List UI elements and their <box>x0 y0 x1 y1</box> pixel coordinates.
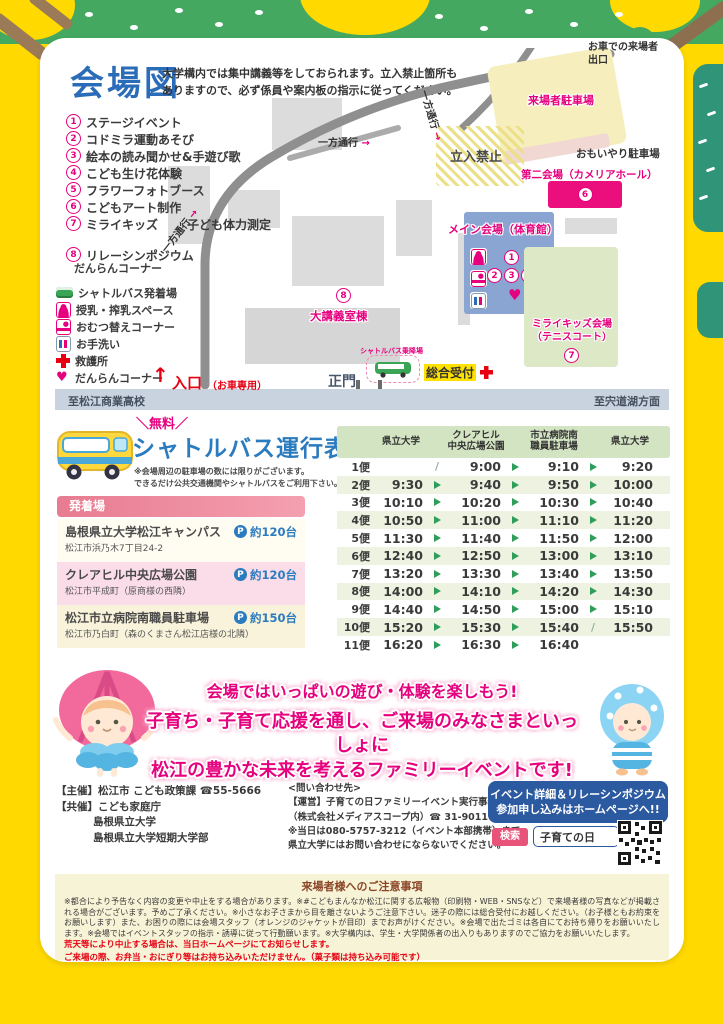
leaf-dot <box>130 25 138 30</box>
arrow-separator <box>429 534 445 542</box>
activity-number: 6 <box>66 199 81 214</box>
timetable-row: 2便 9:30 9:40 9:50 10:00 <box>337 476 670 494</box>
search-input[interactable] <box>533 826 619 847</box>
time-cell: 13:30 <box>445 566 507 581</box>
arrow-separator <box>429 605 445 613</box>
banner-line3: 松江の豊かな未来を考えるファミリーイベントです! <box>140 759 584 783</box>
notes-panel: 来場者様へのご注意事項 ※都合により予告なく内容の変更や中止をする場合があります… <box>55 874 669 960</box>
time-cell: 11:30 <box>373 531 429 546</box>
trip-label: 9便 <box>337 601 373 617</box>
trip-label: 1便 <box>337 459 373 475</box>
parking-icon <box>234 611 247 624</box>
organizer-line: 島根県立大学短期大学部 <box>56 831 261 847</box>
time-cell: 9:50 <box>523 477 585 492</box>
notes-body: ※都合により予告なく内容の変更や中止をする場合があります。※#こどもまんなか松江… <box>64 897 660 939</box>
arrow-separator <box>429 516 445 524</box>
first-aid-icon <box>56 354 70 368</box>
arrow-separator <box>429 460 445 473</box>
arrow-separator <box>507 498 523 506</box>
time-cell: 9:00 <box>445 459 507 474</box>
oneway-label-horizontal: 一方通行 → <box>318 134 370 149</box>
time-cell: 14:00 <box>373 584 429 599</box>
arrow-separator <box>507 570 523 578</box>
arrow-separator <box>429 481 445 489</box>
activity-number: 4 <box>66 165 81 180</box>
activity-item: 2 コドミラ運動あそび <box>66 131 271 148</box>
stop-item: 島根県立大学松江キャンパス 約120台 松江市浜乃木7丁目24-2 <box>57 519 305 562</box>
arrow-separator <box>429 498 445 506</box>
time-cell: 16:30 <box>445 637 507 652</box>
notes-red-line: ご来場の際、お弁当・おにぎり等はお持ち込みいただけません。（菓子類は持ち込み可能… <box>64 952 660 964</box>
activity-item: 3 絵本の読み聞かせ&手遊び歌 <box>66 148 271 165</box>
diaper-icon <box>470 270 487 287</box>
time-cell: 16:20 <box>373 637 429 652</box>
stop-item: 松江市立病院南職員駐車場 約150台 松江市乃白町（森のくまさん松江店様の北隣） <box>57 605 305 648</box>
time-cell: 10:20 <box>445 495 507 510</box>
shuttle-notes: ※会場周辺の駐車場の数には限りがございます。 できるだけ公共交通機関やシャトルバ… <box>134 466 342 491</box>
activity-item: 6 こどもアート制作 <box>66 199 271 216</box>
front-road <box>55 389 669 410</box>
trip-label: 8便 <box>337 583 373 599</box>
time-cell: 10:10 <box>373 495 429 510</box>
activity-number: 1 <box>66 114 81 129</box>
arrow-separator <box>585 621 601 634</box>
arrow-separator <box>585 587 601 595</box>
flyer-page: 会場図 大学構内では集中講義等をしておられます。立入禁止箇所も ありますので、必… <box>0 0 723 1024</box>
website-banner-line1: イベント詳細＆リレーシンポジウム <box>490 787 666 802</box>
arrow-separator <box>507 534 523 542</box>
trip-label: 5便 <box>337 530 373 546</box>
col-header-3: 市立病院南職員駐車場 <box>523 431 585 453</box>
organizer-block: 【主催】松江市 こども政策課 ☎55-5666 【共催】こども家庭庁 島根県立大… <box>56 784 261 846</box>
legend-item: シャトルバス発着場 <box>56 284 177 301</box>
entrance-note: （お車専用） <box>207 377 267 392</box>
time-cell: 13:40 <box>523 566 585 581</box>
to-lake-label: 至宍道湖方面 <box>594 393 660 409</box>
main-gate-label: 正門 <box>328 371 356 391</box>
activity-label: ステージイベント <box>86 114 182 131</box>
activity-number: 5 <box>66 182 81 197</box>
mascot-right <box>582 674 682 779</box>
timetable: 県立大学 クレアヒル中央広場公園 市立病院南職員駐車場 県立大学 1便 9:00… <box>337 426 670 654</box>
stop-name: 島根県立大学松江キャンパス <box>65 523 221 540</box>
time-cell: 12:40 <box>373 548 429 563</box>
arrow-separator <box>429 623 445 631</box>
time-cell: 12:50 <box>445 548 507 563</box>
legend-label: お手洗い <box>76 336 120 352</box>
timetable-row: 3便 10:10 10:20 10:30 10:40 <box>337 494 670 512</box>
visitor-parking-label: 来場者駐車場 <box>506 92 616 108</box>
time-cell: 14:40 <box>373 602 429 617</box>
stop-address: 松江市浜乃木7丁目24-2 <box>65 541 297 554</box>
legend-item: お手洗い <box>56 335 177 352</box>
mirai-kids-label: ミライキッズ会場 （テニスコート） <box>526 318 618 344</box>
legend-label: 救護所 <box>75 353 108 369</box>
arrow-separator <box>585 516 601 524</box>
oneway-text: 一方通行 <box>318 138 358 149</box>
entrance-arrow-icon: ↑ <box>152 363 169 387</box>
time-cell: 15:30 <box>445 620 507 635</box>
banner-line2: 子育ち・子育て応援を通し、ご来場のみなさまといっしょに <box>140 710 584 759</box>
shuttle-title: シャトルバス運行表 <box>132 429 348 463</box>
stop-item: クレアヒル中央広場公園 約120台 松江市平成町（原商様の西隣） <box>57 562 305 605</box>
nursing-icon <box>470 248 487 265</box>
activity-number: 2 <box>66 131 81 146</box>
arrow-separator <box>585 570 601 578</box>
notes-red-line: 荒天等により中止する場合は、当日ホームページにてお知らせします。 <box>64 939 660 951</box>
timetable-row: 1便 9:00 9:10 9:20 <box>337 458 670 476</box>
no-entry-label: 立入禁止 <box>450 146 502 165</box>
stop-capacity: 約150台 <box>250 610 297 626</box>
arrow-separator <box>507 481 523 489</box>
lecture-hall-label: 大講義室棟 <box>310 308 368 324</box>
activity-label: フラワーフォトブース <box>86 182 205 199</box>
arrow-separator <box>507 516 523 524</box>
time-cell: 13:10 <box>601 548 659 563</box>
parking-icon <box>234 568 247 581</box>
shuttle-stop-marker <box>366 355 420 383</box>
time-cell: 9:30 <box>373 477 429 492</box>
reception-label: 総合受付 <box>424 364 476 381</box>
arrow-separator <box>585 463 601 471</box>
website-banner: イベント詳細＆リレーシンポジウム 参加申し込みはホームページへ!! <box>488 781 668 823</box>
activity-number: 7 <box>66 216 81 231</box>
leaf-dot <box>480 26 488 31</box>
second-venue-block: 6 <box>548 181 622 208</box>
arrow-separator <box>585 605 601 613</box>
arrow-separator <box>507 605 523 613</box>
time-cell: 10:00 <box>601 477 659 492</box>
care-parking-label: おもいやり駐車場 <box>576 146 660 161</box>
time-cell: 13:00 <box>523 548 585 563</box>
time-cell: 12:00 <box>601 531 659 546</box>
shuttle-note-line2: できるだけ公共交通機関やシャトルバスをご利用下さい。 <box>134 478 342 490</box>
arrow-separator <box>585 552 601 560</box>
entrance-label: 入口 <box>172 372 202 393</box>
qr-code <box>617 820 663 866</box>
hall-number-2: 2 <box>487 268 502 283</box>
restroom-icon <box>56 336 71 352</box>
legend-item: おむつ替えコーナー <box>56 318 177 335</box>
banner: 会場ではいっぱいの遊び・体験を楽しもう! 子育ち・子育て応援を通し、ご来場のみな… <box>140 678 584 783</box>
timetable-header: 県立大学 クレアヒル中央広場公園 市立病院南職員駐車場 県立大学 <box>337 426 670 458</box>
first-aid-cross-icon <box>480 366 493 379</box>
time-cell: 14:10 <box>445 584 507 599</box>
time-cell: 15:10 <box>601 602 659 617</box>
arrow-separator <box>507 552 523 560</box>
trip-label: 7便 <box>337 566 373 582</box>
parking-icon <box>234 525 247 538</box>
time-cell: 13:20 <box>373 566 429 581</box>
time-cell: 10:50 <box>373 513 429 528</box>
shuttle-bus-icon <box>373 360 413 378</box>
time-cell: 9:20 <box>601 459 659 474</box>
time-cell: 10:30 <box>523 495 585 510</box>
leaf-dot <box>570 22 578 27</box>
bus-illustration <box>54 424 138 484</box>
arrow-separator <box>429 587 445 595</box>
stop-name: クレアヒル中央広場公園 <box>65 566 197 583</box>
time-cell: 14:50 <box>445 602 507 617</box>
legend-label: だんらんコーナー <box>75 370 163 386</box>
time-cell: 9:10 <box>523 459 585 474</box>
legend-label: おむつ替えコーナー <box>76 319 175 335</box>
oneway-arrow-icon: → <box>361 138 369 149</box>
col-header-1: 県立大学 <box>373 437 429 448</box>
banner-line1: 会場ではいっぱいの遊び・体験を楽しもう! <box>140 678 584 702</box>
time-cell: 15:50 <box>601 620 659 635</box>
leaf-dot <box>435 14 443 19</box>
arrow-separator <box>507 463 523 471</box>
arrow-separator <box>429 641 445 649</box>
time-cell: 15:40 <box>523 620 585 635</box>
nursing-icon <box>56 302 71 318</box>
timetable-row: 5便 11:30 11:40 11:50 12:00 <box>337 529 670 547</box>
time-cell: 13:50 <box>601 566 659 581</box>
stop-capacity: 約120台 <box>250 524 297 540</box>
trip-label: 6便 <box>337 548 373 564</box>
leaf-dot <box>175 8 183 13</box>
time-cell: 10:40 <box>601 495 659 510</box>
leaf-dot <box>85 12 93 17</box>
leaf-dot <box>215 22 223 27</box>
mirai-kids-line1: ミライキッズ会場 <box>526 318 618 331</box>
organizer-line: 【主催】松江市 こども政策課 ☎55-5666 <box>56 784 261 800</box>
time-cell: 11:20 <box>601 513 659 528</box>
activity-label-line2: 子ども体力測定 <box>187 216 271 233</box>
organizer-line: 島根県立大学 <box>56 815 261 831</box>
second-venue-number: 6 <box>578 187 593 202</box>
arrow-separator <box>507 641 523 649</box>
time-cell: 14:30 <box>601 584 659 599</box>
second-venue-label: 第二会場（カメリアホール） <box>521 167 658 182</box>
activity-label: 絵本の読み聞かせ&手遊び歌 <box>86 148 240 165</box>
shuttle-note-line1: ※会場周辺の駐車場の数には限りがございます。 <box>134 466 342 478</box>
restroom-icon <box>470 292 487 309</box>
side-tree <box>693 64 723 232</box>
time-cell: 9:40 <box>445 477 507 492</box>
hall-number-1: 1 <box>504 250 519 265</box>
timetable-rows: 1便 9:00 9:10 9:20 2便 9:30 9:40 9:50 <box>337 458 670 654</box>
arrow-separator <box>429 552 445 560</box>
arrow-separator <box>585 498 601 506</box>
stops-list: 島根県立大学松江キャンパス 約120台 松江市浜乃木7丁目24-2 クレアヒル中… <box>57 519 305 648</box>
stop-name: 松江市立病院南職員駐車場 <box>65 609 209 626</box>
activity-label: こども生け花体験 <box>86 165 182 182</box>
side-tree <box>697 282 723 338</box>
activity-label: こどもアート制作 <box>86 199 181 216</box>
col-header-4: 県立大学 <box>601 437 659 448</box>
time-cell: 11:50 <box>523 531 585 546</box>
leaf-dot <box>525 9 533 14</box>
arrow-separator <box>585 481 601 489</box>
arrow-separator <box>429 570 445 578</box>
heart-icon <box>56 371 70 385</box>
timetable-row: 10便 15:20 15:30 15:40 15:50 <box>337 618 670 636</box>
main-venue-label: メイン会場（体育館） <box>448 221 558 237</box>
trip-label: 10便 <box>337 619 373 635</box>
activity-item: 5 フラワーフォトブース <box>66 182 271 199</box>
trip-label: 2便 <box>337 477 373 493</box>
legend-label: 授乳・搾乳スペース <box>76 302 174 318</box>
notes-header: 来場者様へのご注意事項 <box>64 878 660 894</box>
lecture-hall-number: 8 <box>336 288 351 303</box>
legend-label: シャトルバス発着場 <box>78 285 177 301</box>
heart-icon: ♥ <box>508 286 521 304</box>
leaf-dot <box>255 10 263 15</box>
leaf-dot <box>615 12 623 17</box>
car-exit-line2: 出口 <box>588 55 658 68</box>
stop-capacity: 約120台 <box>250 567 297 583</box>
car-exit-label: お車での来場者 出口 <box>588 42 658 67</box>
stops-header: 発着場 <box>57 496 305 517</box>
timetable-row: 11便 16:20 16:30 16:40 <box>337 636 670 654</box>
time-cell: 11:10 <box>523 513 585 528</box>
time-cell: 14:20 <box>523 584 585 599</box>
arrow-separator <box>507 587 523 595</box>
time-cell: 11:40 <box>445 531 507 546</box>
time-cell: 11:00 <box>445 513 507 528</box>
reception: 総合受付 <box>424 364 493 381</box>
activity-number: 3 <box>66 148 81 163</box>
stop-address: 松江市乃白町（森のくまさん松江店様の北隣） <box>65 627 297 640</box>
timetable-row: 9便 14:40 14:50 15:00 15:10 <box>337 600 670 618</box>
trip-label: 3便 <box>337 494 373 510</box>
timetable-row: 7便 13:20 13:30 13:40 13:50 <box>337 565 670 583</box>
hall-number-3: 3 <box>504 268 519 283</box>
arrow-separator <box>507 623 523 631</box>
car-exit-line1: お車での来場者 <box>588 42 658 55</box>
to-school-label: 至松江商業高校 <box>68 393 145 409</box>
mirai-kids-number: 7 <box>564 348 579 363</box>
corner-label: だんらんコーナー <box>74 260 162 276</box>
website-banner-line2: 参加申し込みはホームページへ!! <box>496 802 659 817</box>
organizer-line: 【共催】こども家庭庁 <box>56 800 261 816</box>
timetable-row: 4便 10:50 11:00 11:10 11:20 <box>337 511 670 529</box>
activity-item: 1 ステージイベント <box>66 114 271 131</box>
mirai-kids-line2: （テニスコート） <box>526 331 618 344</box>
trip-label: 11便 <box>337 637 373 653</box>
col-header-2: クレアヒル中央広場公園 <box>445 431 507 453</box>
arrow-separator <box>585 534 601 542</box>
time-cell: 15:00 <box>523 602 585 617</box>
legend-item: 授乳・搾乳スペース <box>56 301 177 318</box>
activity-label: コドミラ運動あそび <box>86 131 194 148</box>
shuttle-bus-icon <box>56 287 73 298</box>
timetable-row: 8便 14:00 14:10 14:20 14:30 <box>337 583 670 601</box>
activity-label: ミライキッズ <box>86 216 158 233</box>
diaper-icon <box>56 319 71 335</box>
time-cell: 15:20 <box>373 620 429 635</box>
trip-label: 4便 <box>337 512 373 528</box>
stop-address: 松江市平成町（原商様の西隣） <box>65 584 297 597</box>
time-cell: 16:40 <box>523 637 585 652</box>
timetable-row: 6便 12:40 12:50 13:00 13:10 <box>337 547 670 565</box>
activity-item: 4 こども生け花体験 <box>66 165 271 182</box>
search-button[interactable]: 検索 <box>492 828 528 846</box>
